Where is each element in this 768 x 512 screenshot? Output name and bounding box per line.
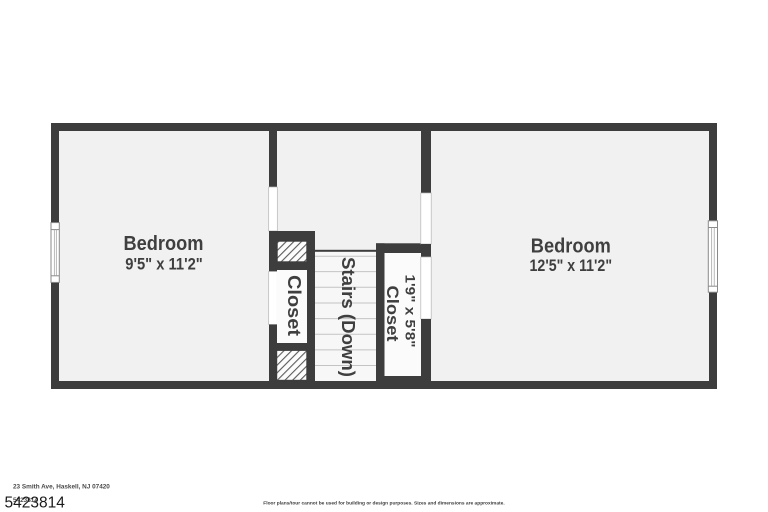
svg-text:Bedroom: Bedroom bbox=[531, 236, 611, 258]
svg-text:Closet: Closet bbox=[383, 286, 402, 342]
svg-text:5423814: 5423814 bbox=[5, 495, 66, 512]
svg-text:Closet: Closet bbox=[284, 275, 305, 336]
svg-text:Stairs (Down): Stairs (Down) bbox=[338, 257, 358, 377]
svg-text:23 Smith Ave, Haskell, NJ 0742: 23 Smith Ave, Haskell, NJ 07420 bbox=[13, 484, 110, 491]
svg-text:12'5" x 11'2": 12'5" x 11'2" bbox=[530, 257, 613, 275]
svg-text:9'5" x 11'2": 9'5" x 11'2" bbox=[125, 255, 203, 273]
svg-text:1'9" x 5'8": 1'9" x 5'8" bbox=[403, 275, 419, 348]
svg-text:Floor plans/tour cannot be use: Floor plans/tour cannot be used for buil… bbox=[263, 501, 505, 507]
svg-text:Bedroom: Bedroom bbox=[124, 233, 204, 255]
